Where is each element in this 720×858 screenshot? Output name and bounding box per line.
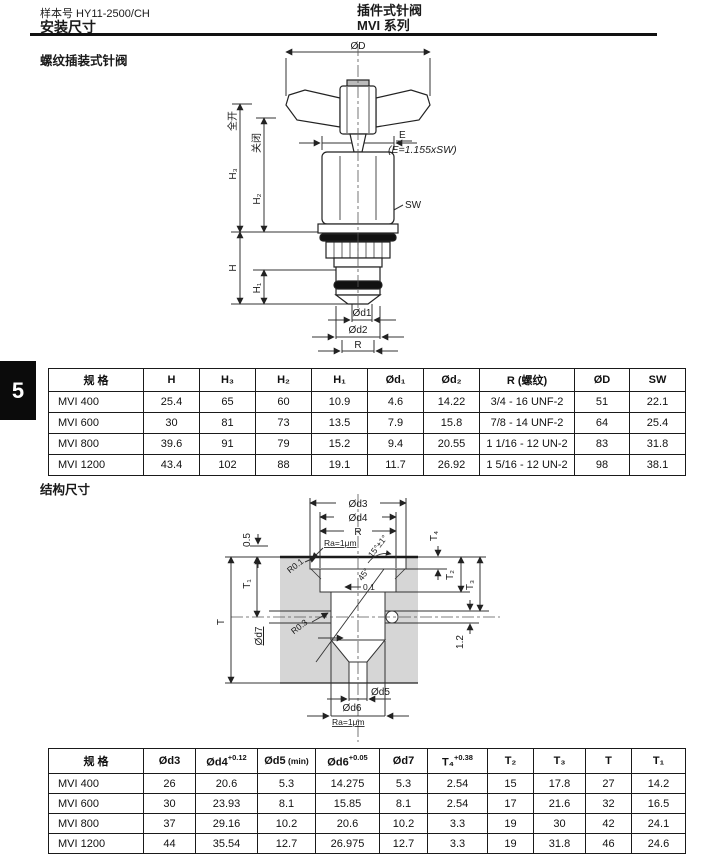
table-cell: 38.1	[630, 455, 686, 476]
column-header: R (螺纹)	[480, 369, 575, 392]
table-cell: 7.9	[368, 413, 424, 434]
table-cell: 26.975	[316, 834, 380, 854]
column-header: 规 格	[49, 369, 144, 392]
table-cell: 39.6	[144, 434, 200, 455]
dim-label-od3: Ød3	[349, 499, 368, 510]
dim-label-e: E	[399, 130, 406, 141]
column-header: Ød₁	[368, 369, 424, 392]
chapter-tab: 5	[0, 361, 36, 420]
table-cell: 20.6	[316, 814, 380, 834]
table-cell: 13.5	[312, 413, 368, 434]
table-row: MVI 6003023.938.115.858.12.541721.63216.…	[49, 794, 686, 814]
mounting-drawing: ØD 全开 关闭 H₃ H₂ H H₁ E (E=1.155xSW) SW Ød…	[215, 40, 475, 362]
header-row: 规 格HH₃H₂H₁Ød₁Ød₂R (螺纹)ØDSW	[49, 369, 686, 392]
table-cell: 51	[575, 392, 630, 413]
table-cell: 26.92	[424, 455, 480, 476]
table-cell: 8.1	[380, 794, 428, 814]
dim-label-od2: Ød2	[349, 325, 368, 336]
table-cell: 5.3	[258, 774, 316, 794]
row-label: MVI 400	[49, 392, 144, 413]
column-header: H	[144, 369, 200, 392]
row-label: MVI 1200	[49, 455, 144, 476]
table-cell: 1 1/16 - 12 UN-2	[480, 434, 575, 455]
table-cell: 27	[586, 774, 632, 794]
table-cell: 14.275	[316, 774, 380, 794]
surface-finish-label-bottom: Ra=1μm	[332, 717, 365, 727]
table-cell: 12.7	[380, 834, 428, 854]
table-cell: 10.2	[380, 814, 428, 834]
dim-label-h1: H₁	[252, 282, 263, 293]
table-cell: 30	[534, 814, 586, 834]
dim-label-t1: T₁	[242, 579, 253, 589]
table-cell: 1 5/16 - 12 UN-2	[480, 455, 575, 476]
dim-label-05: 0.5	[242, 533, 253, 547]
dim-label-od6: Ød6	[343, 703, 362, 714]
product-title-block: 插件式针阀 MVI 系列	[357, 3, 422, 33]
table-cell: 32	[586, 794, 632, 814]
table-cell: 19	[488, 834, 534, 854]
dim-label-od7: Ød7	[254, 626, 265, 645]
row-label: MVI 600	[49, 794, 144, 814]
dim-label-h2: H₂	[252, 193, 263, 204]
table-cell: 23.93	[196, 794, 258, 814]
column-header: SW	[630, 369, 686, 392]
table-cell: 60	[256, 392, 312, 413]
table-cell: 17.8	[534, 774, 586, 794]
column-header: H₂	[256, 369, 312, 392]
dim-label-sw: SW	[405, 200, 422, 211]
table-cell: 15.85	[316, 794, 380, 814]
row-label: MVI 800	[49, 814, 144, 834]
table-cell: 7/8 - 14 UNF-2	[480, 413, 575, 434]
column-header: Ød6+0.05	[316, 749, 380, 774]
table-cell: 10.2	[258, 814, 316, 834]
column-header: Ød5 (min)	[258, 749, 316, 774]
dim-label-closed: 关闭	[250, 133, 263, 153]
dim-label-12: 1.2	[455, 635, 466, 649]
dim-label-h3: H₃	[228, 168, 239, 179]
runout-label: 0.1	[363, 582, 375, 592]
header-rule	[30, 33, 657, 36]
table-cell: 43.4	[144, 455, 200, 476]
table-cell: 15.8	[424, 413, 480, 434]
product-title: 插件式针阀	[357, 3, 422, 18]
table-cell: 25.4	[144, 392, 200, 413]
table-cell: 25.4	[630, 413, 686, 434]
dim-label-t: T	[216, 619, 227, 625]
column-header: Ød₂	[424, 369, 480, 392]
table-row: MVI 80039.6917915.29.420.551 1/16 - 12 U…	[49, 434, 686, 455]
column-header: H₃	[200, 369, 256, 392]
dim-label-full-open: 全开	[226, 111, 239, 131]
table-cell: 64	[575, 413, 630, 434]
table-cell: 5.3	[380, 774, 428, 794]
table-cell: 9.4	[368, 434, 424, 455]
section-heading-structure: 结构尺寸	[40, 479, 90, 498]
table-cell: 31.8	[534, 834, 586, 854]
table-row: MVI 8003729.1610.220.610.23.319304224.1	[49, 814, 686, 834]
table-cell: 2.54	[428, 794, 488, 814]
dim-label-od1: Ød1	[353, 308, 372, 319]
table-cell: 81	[200, 413, 256, 434]
table-cell: 37	[144, 814, 196, 834]
table-cell: 24.6	[632, 834, 686, 854]
table-cell: 22.1	[630, 392, 686, 413]
section-heading-mounting: 螺纹插装式针阀	[40, 50, 128, 69]
table-cell: 83	[575, 434, 630, 455]
table-cell: 20.55	[424, 434, 480, 455]
cavity-drawing: Ød3 Ød4 R Ra=1μm 15°±1° R0.1 0.5 T₄ T₂ T…	[145, 490, 505, 746]
column-header: T	[586, 749, 632, 774]
table-row: MVI 40025.4656010.94.614.223/4 - 16 UNF-…	[49, 392, 686, 413]
dim-label-od4: Ød4	[349, 513, 368, 524]
table-cell: 24.1	[632, 814, 686, 834]
row-label: MVI 400	[49, 774, 144, 794]
table-cell: 15.2	[312, 434, 368, 455]
series-title: MVI 系列	[357, 18, 422, 33]
column-header: T₂	[488, 749, 534, 774]
dim-label-t3: T₃	[465, 580, 476, 590]
table-cell: 14.2	[632, 774, 686, 794]
table-cell: 42	[586, 814, 632, 834]
column-header: ØD	[575, 369, 630, 392]
table-cell: 31.8	[630, 434, 686, 455]
header-row: 规 格Ød3Ød4+0.12Ød5 (min)Ød6+0.05Ød7T₄+0.3…	[49, 749, 686, 774]
dim-label-r: R	[354, 340, 361, 351]
table-cell: 65	[200, 392, 256, 413]
table-cell: 79	[256, 434, 312, 455]
table-cell: 10.9	[312, 392, 368, 413]
table-cell: 29.16	[196, 814, 258, 834]
dim-label-e-formula: (E=1.155xSW)	[388, 144, 457, 156]
surface-finish-label-top: Ra=1μm	[324, 538, 357, 548]
table-cell: 14.22	[424, 392, 480, 413]
table-cell: 17	[488, 794, 534, 814]
column-header: Ød3	[144, 749, 196, 774]
table-row: MVI 120043.41028819.111.726.921 5/16 - 1…	[49, 455, 686, 476]
table-cell: 30	[144, 413, 200, 434]
column-header: T₄+0.38	[428, 749, 488, 774]
mounting-dimensions-table: 规 格HH₃H₂H₁Ød₁Ød₂R (螺纹)ØDSWMVI 40025.4656…	[48, 368, 686, 476]
table-cell: 19	[488, 814, 534, 834]
row-label: MVI 600	[49, 413, 144, 434]
dim-label-od5: Ød5	[371, 687, 390, 698]
dim-label-r: R	[354, 527, 361, 538]
table-cell: 8.1	[258, 794, 316, 814]
table-cell: 3/4 - 16 UNF-2	[480, 392, 575, 413]
table-cell: 16.5	[632, 794, 686, 814]
table-cell: 21.6	[534, 794, 586, 814]
cavity-dimensions-table: 规 格Ød3Ød4+0.12Ød5 (min)Ød6+0.05Ød7T₄+0.3…	[48, 748, 686, 854]
table-cell: 73	[256, 413, 312, 434]
dim-label-t2: T₂	[445, 570, 456, 580]
row-label: MVI 1200	[49, 834, 144, 854]
table-cell: 15	[488, 774, 534, 794]
column-header: Ød4+0.12	[196, 749, 258, 774]
table-cell: 91	[200, 434, 256, 455]
column-header: H₁	[312, 369, 368, 392]
table-cell: 19.1	[312, 455, 368, 476]
table-cell: 35.54	[196, 834, 258, 854]
table-row: MVI 12004435.5412.726.97512.73.31931.846…	[49, 834, 686, 854]
dim-label-t4: T₄	[429, 531, 440, 541]
table-cell: 88	[256, 455, 312, 476]
table-cell: 30	[144, 794, 196, 814]
table-row: MVI 4002620.65.314.2755.32.541517.82714.…	[49, 774, 686, 794]
table-cell: 4.6	[368, 392, 424, 413]
table-cell: 12.7	[258, 834, 316, 854]
dim-label-h: H	[228, 264, 239, 271]
column-header: 规 格	[49, 749, 144, 774]
table-cell: 20.6	[196, 774, 258, 794]
row-label: MVI 800	[49, 434, 144, 455]
column-header: T₁	[632, 749, 686, 774]
table-cell: 46	[586, 834, 632, 854]
table-cell: 11.7	[368, 455, 424, 476]
table-cell: 3.3	[428, 814, 488, 834]
table-cell: 26	[144, 774, 196, 794]
table-cell: 98	[575, 455, 630, 476]
table-cell: 3.3	[428, 834, 488, 854]
table-row: MVI 60030817313.57.915.87/8 - 14 UNF-264…	[49, 413, 686, 434]
dim-label-od: ØD	[351, 41, 366, 52]
table-cell: 44	[144, 834, 196, 854]
column-header: T₃	[534, 749, 586, 774]
table-cell: 102	[200, 455, 256, 476]
table-cell: 2.54	[428, 774, 488, 794]
column-header: Ød7	[380, 749, 428, 774]
